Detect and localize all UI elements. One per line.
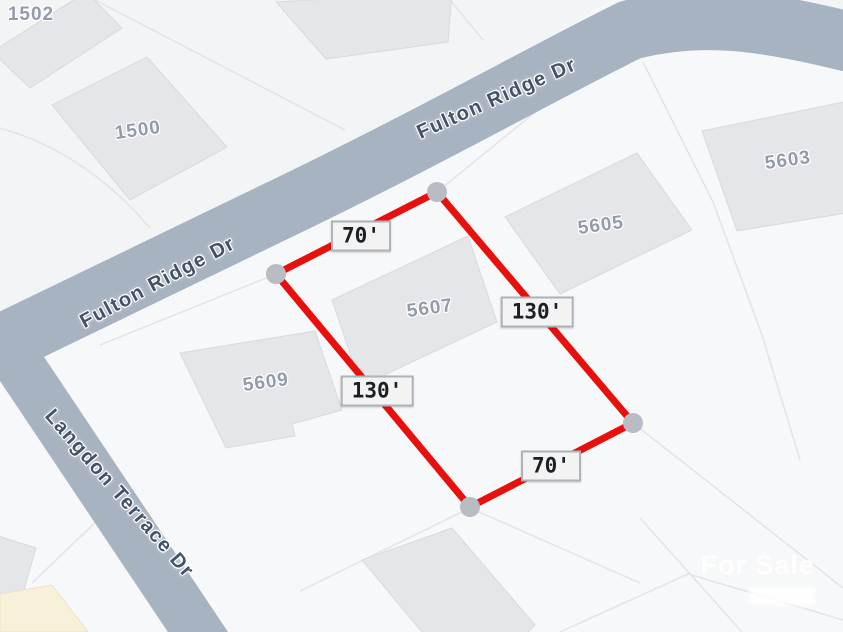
house-number-1502: 1502 [8,4,54,26]
parcel-map-canvas[interactable]: Fulton Ridge Dr Fulton Ridge Dr Langdon … [0,0,843,632]
parcel-vertex-north[interactable] [427,182,447,202]
building-unlabeled-bottom [362,528,535,632]
parcel-vertex-east[interactable] [623,413,643,433]
watermark-line2-illegible [749,586,815,606]
dimension-label-top: 70' [331,221,391,252]
parcel-vertex-west[interactable] [266,264,286,284]
building-cream-corner [0,585,88,632]
dimension-label-right: 130' [501,297,574,328]
lot-line [470,508,640,583]
lot-line [32,518,100,583]
dimension-label-bottom: 70' [521,451,581,482]
parcel-vertex-south[interactable] [460,497,480,517]
watermark-for-sale: For Sale [700,550,815,581]
dimension-label-left: 130' [341,376,414,407]
